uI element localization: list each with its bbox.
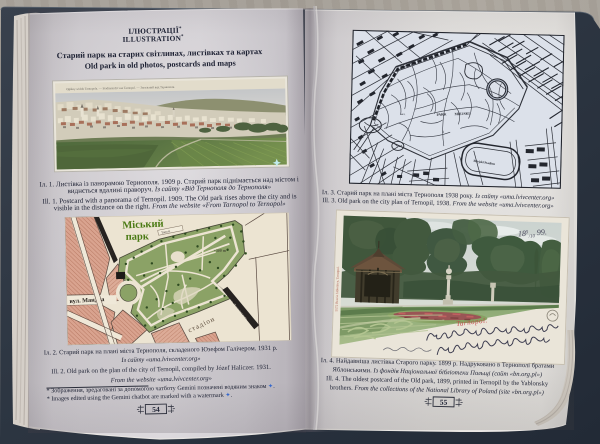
svg-text:зал.: зал. bbox=[401, 112, 406, 116]
svg-text:54: 54 bbox=[152, 405, 160, 414]
svg-text:PARK: PARK bbox=[436, 112, 446, 116]
svg-text:+300 m: +300 m bbox=[214, 248, 227, 253]
svg-text:парк: парк bbox=[126, 231, 150, 243]
svg-text:55: 55 bbox=[440, 398, 448, 407]
svg-text:Міський: Міський bbox=[122, 219, 164, 232]
svg-text:MIEJSKI: MIEJSKI bbox=[454, 112, 470, 117]
